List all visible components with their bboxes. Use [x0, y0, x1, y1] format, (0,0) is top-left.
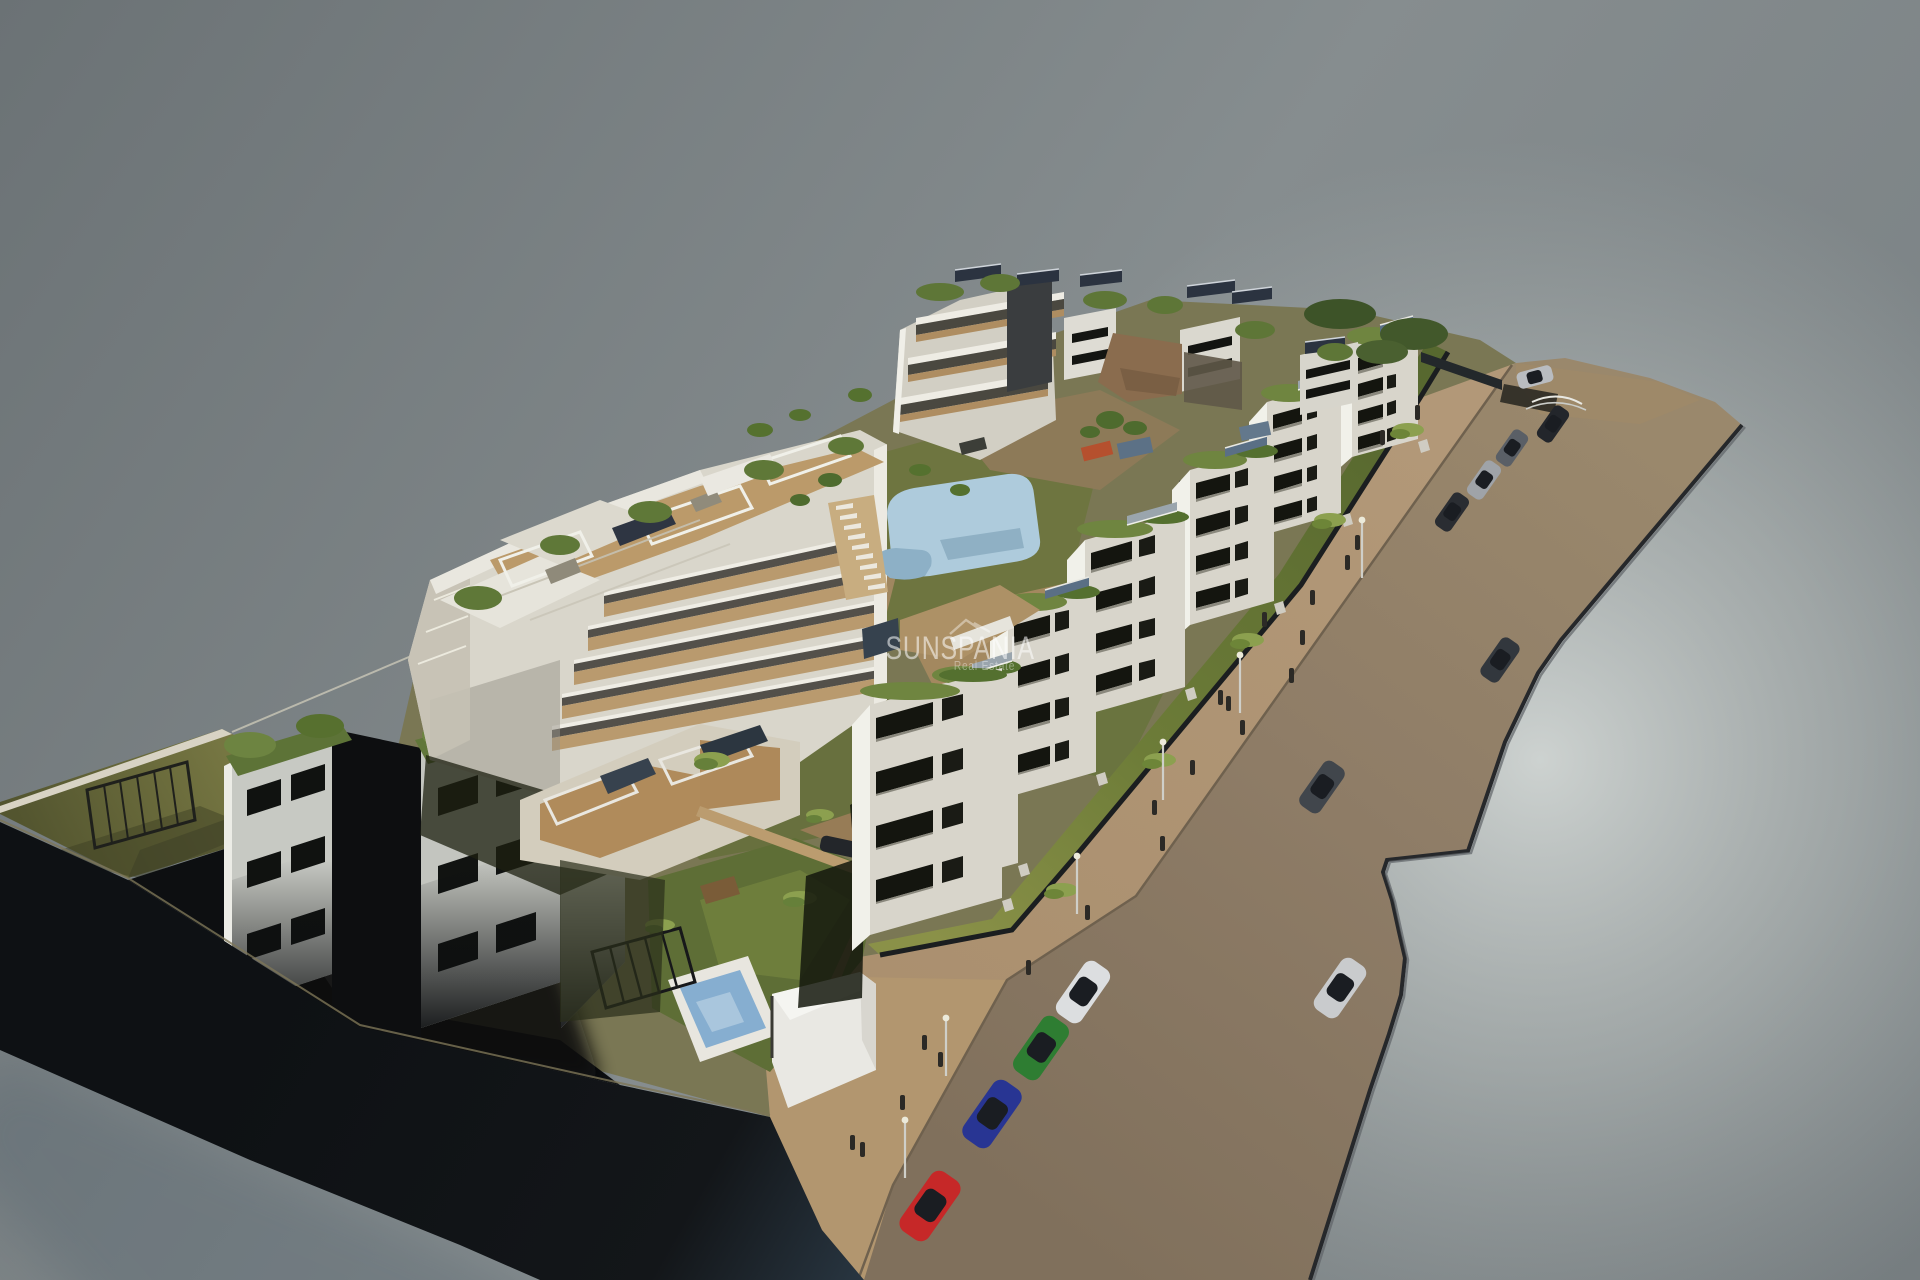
svg-text:Real Estate: Real Estate [954, 660, 1015, 673]
